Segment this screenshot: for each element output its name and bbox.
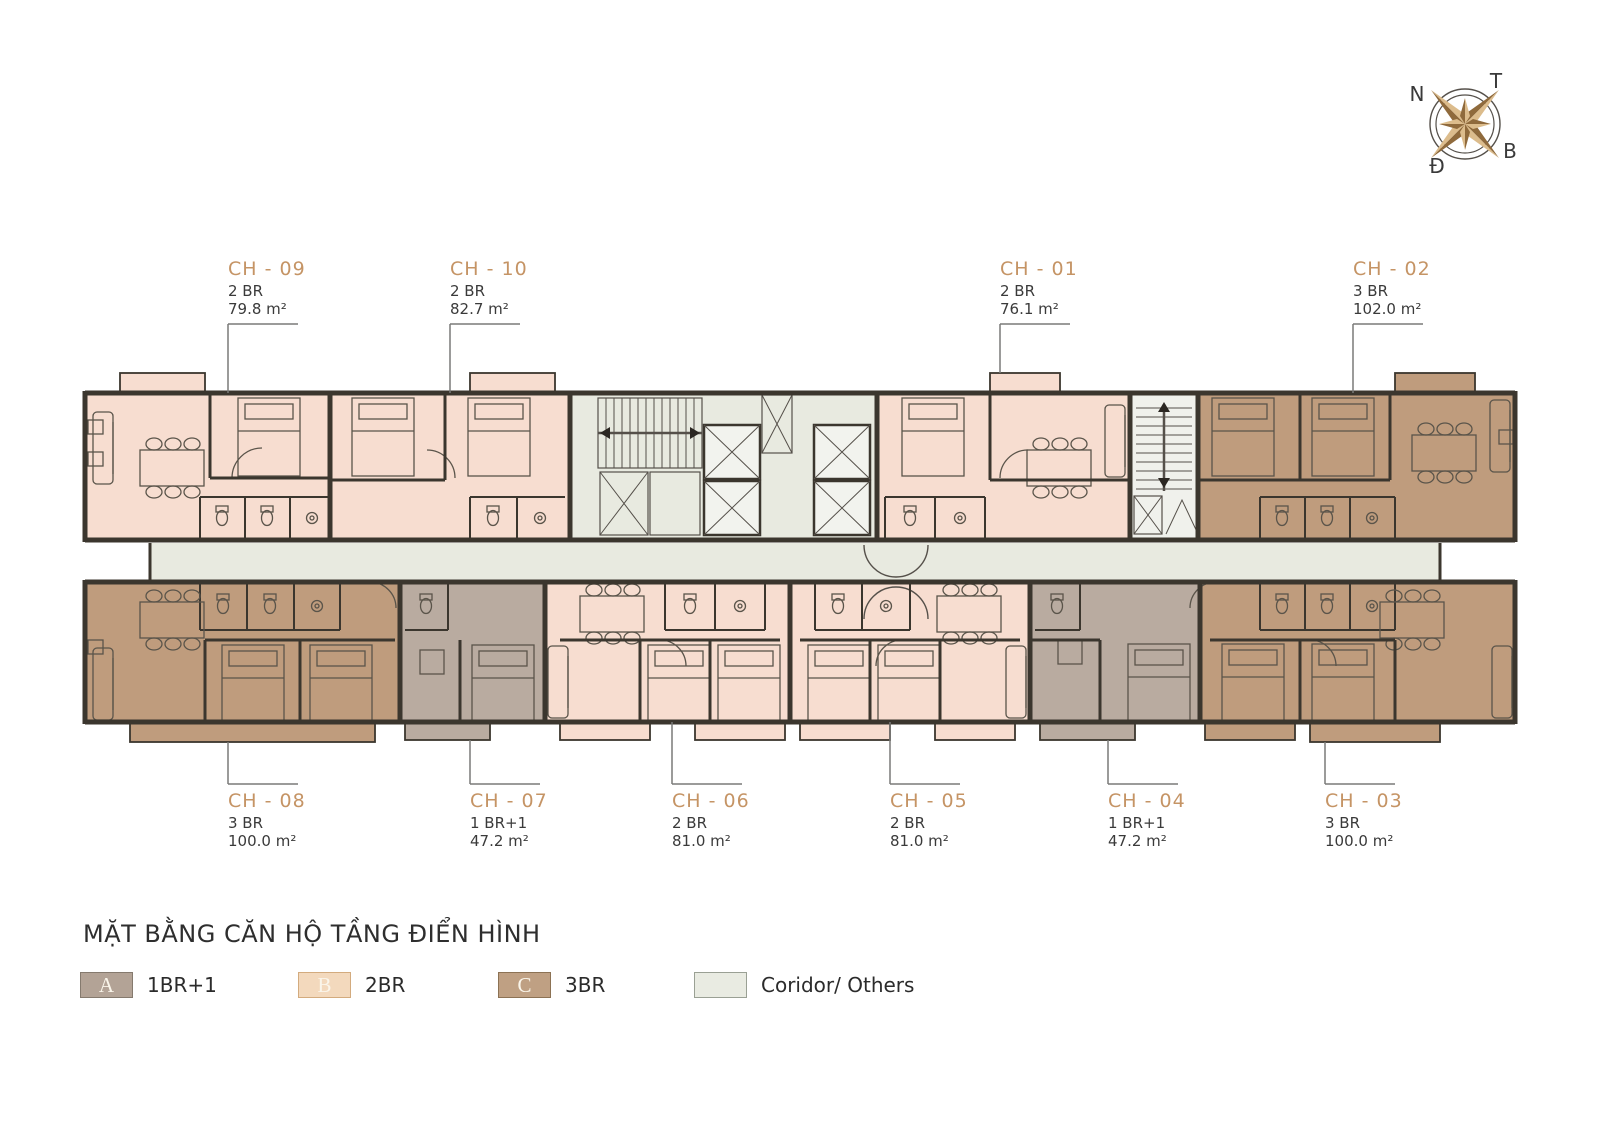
floor-plan: N T B Đ [0, 0, 1600, 1131]
unit-label-ch-06: CH - 06 2 BR 81.0 m² [672, 790, 822, 851]
unit-type: 2 BR [1000, 283, 1150, 301]
unit-id: CH - 10 [450, 258, 600, 280]
unit-area: 79.8 m² [228, 301, 378, 319]
unit-label-ch-03: CH - 03 3 BR 100.0 m² [1325, 790, 1475, 851]
unit-area: 47.2 m² [1108, 833, 1258, 851]
unit-id: CH - 02 [1353, 258, 1503, 280]
compass-rose: N T B Đ [1397, 56, 1533, 192]
unit-id: CH - 08 [228, 790, 378, 812]
unit-id: CH - 06 [672, 790, 822, 812]
unit-type: 2 BR [672, 815, 822, 833]
unit-type: 2 BR [450, 283, 600, 301]
legend-swatch-2br: B [298, 972, 351, 998]
unit-id: CH - 09 [228, 258, 378, 280]
unit-id: CH - 07 [470, 790, 620, 812]
page-title: MẶT BẰNG CĂN HỘ TẦNG ĐIỂN HÌNH [83, 920, 541, 948]
unit-id: CH - 01 [1000, 258, 1150, 280]
unit-area: 76.1 m² [1000, 301, 1150, 319]
legend-item-coridor: Coridor/ Others [694, 972, 914, 998]
legend: A 1BR+1 B 2BR C 3BR Coridor/ Others [0, 972, 1600, 1012]
unit-label-ch-09: CH - 09 2 BR 79.8 m² [228, 258, 378, 319]
unit-label-ch-04: CH - 04 1 BR+1 47.2 m² [1108, 790, 1258, 851]
unit-type: 2 BR [228, 283, 378, 301]
unit-label-ch-05: CH - 05 2 BR 81.0 m² [890, 790, 1040, 851]
compass-label-d: Đ [1429, 154, 1445, 178]
unit-type: 3 BR [228, 815, 378, 833]
unit-ch-02 [1198, 395, 1515, 540]
unit-area: 47.2 m² [470, 833, 620, 851]
unit-area: 81.0 m² [672, 833, 822, 851]
unit-area: 81.0 m² [890, 833, 1040, 851]
legend-label-3br: 3BR [565, 973, 605, 997]
legend-item-2br: B 2BR [298, 972, 405, 998]
unit-area: 100.0 m² [228, 833, 378, 851]
compass-label-n: N [1410, 82, 1425, 106]
legend-item-3br: C 3BR [498, 972, 605, 998]
unit-id: CH - 05 [890, 790, 1040, 812]
unit-ch-03 [1200, 582, 1515, 722]
legend-swatch-3br: C [498, 972, 551, 998]
unit-label-ch-01: CH - 01 2 BR 76.1 m² [1000, 258, 1150, 319]
legend-swatch-1br1: A [80, 972, 133, 998]
legend-item-1br1: A 1BR+1 [80, 972, 217, 998]
compass-label-b: B [1503, 139, 1517, 163]
unit-label-ch-07: CH - 07 1 BR+1 47.2 m² [470, 790, 620, 851]
unit-area: 102.0 m² [1353, 301, 1503, 319]
unit-id: CH - 04 [1108, 790, 1258, 812]
legend-label-2br: 2BR [365, 973, 405, 997]
unit-label-ch-08: CH - 08 3 BR 100.0 m² [228, 790, 378, 851]
legend-label-1br1: 1BR+1 [147, 973, 217, 997]
unit-id: CH - 03 [1325, 790, 1475, 812]
unit-ch-08 [87, 582, 400, 722]
unit-ch-06 [545, 582, 790, 722]
floorplan-page: N T B Đ [0, 0, 1600, 1131]
unit-label-ch-10: CH - 10 2 BR 82.7 m² [450, 258, 600, 319]
unit-area: 82.7 m² [450, 301, 600, 319]
legend-label-coridor: Coridor/ Others [761, 973, 914, 997]
unit-type: 1 BR+1 [470, 815, 620, 833]
unit-type: 2 BR [890, 815, 1040, 833]
legend-swatch-coridor [694, 972, 747, 998]
unit-area: 100.0 m² [1325, 833, 1475, 851]
unit-type: 1 BR+1 [1108, 815, 1258, 833]
unit-type: 3 BR [1325, 815, 1475, 833]
unit-label-ch-02: CH - 02 3 BR 102.0 m² [1353, 258, 1503, 319]
compass-star [1397, 56, 1533, 192]
unit-ch-04 [1030, 582, 1200, 722]
compass-label-t: T [1489, 69, 1503, 93]
unit-type: 3 BR [1353, 283, 1503, 301]
